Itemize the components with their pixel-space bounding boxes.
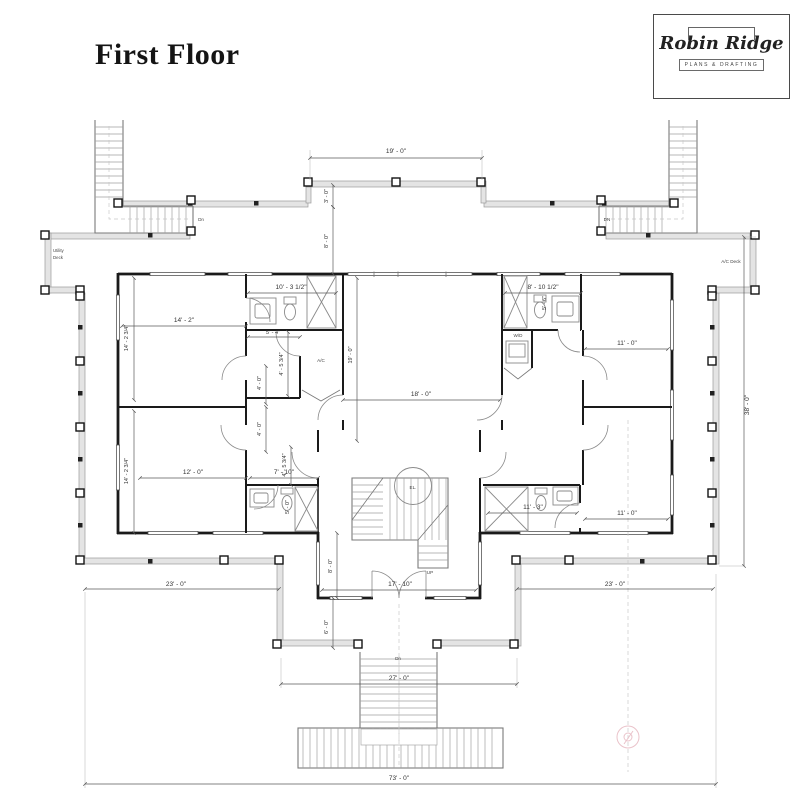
label-ac-closet: A/C <box>317 358 325 363</box>
dim-steps-width: 27' - 0" <box>389 675 410 682</box>
dim-bath-tr-width: 8' - 10 1/2" <box>527 284 559 291</box>
label-stair-down-right: DN <box>604 217 611 222</box>
dim-porch-left: 23' - 0" <box>166 581 187 588</box>
dim-great-width: 18' - 0" <box>411 391 432 398</box>
label-utility-deck-2: Deck <box>53 255 64 260</box>
dim-entry-depth: 8' - 0" <box>328 559 334 573</box>
label-utility-deck-1: Utility <box>53 248 65 253</box>
porch-posts <box>41 178 759 648</box>
dim-entry-porch-depth: 6' - 0" <box>324 620 330 634</box>
dim-bed-tl-depth: 14' - 2 3/4" <box>124 325 130 351</box>
front-steps <box>298 652 503 768</box>
exterior-stair-right <box>599 120 697 233</box>
label-stair-up: UP <box>427 570 433 575</box>
dim-hall-bl-depth: 4' - 5 3/4" <box>282 453 288 476</box>
label-stair-down-left: Dn <box>198 217 204 222</box>
dim-north-porch-depth: 8' - 0" <box>324 234 330 248</box>
dim-deck-width: 19' - 0" <box>386 148 407 155</box>
dim-porch-right: 23' - 0" <box>605 581 626 588</box>
dim-hall-lower: 4' - 0" <box>257 422 263 436</box>
dim-bath-br-width: 11' - 3" <box>523 504 543 511</box>
interior-walls <box>118 274 672 533</box>
dim-entry-width: 17' - 10" <box>388 581 412 588</box>
dim-hall-upper: 4' - 0" <box>257 376 263 390</box>
dim-closet-tl-depth: 4' - 5 3/4" <box>279 352 285 375</box>
dim-bed-tr-width: 11' - 0" <box>617 340 637 347</box>
dim-bed-bl-width: 12' - 0" <box>183 469 204 476</box>
porch-deck-bands <box>45 181 756 646</box>
dim-bath-tl-width: 10' - 3 1/2" <box>275 284 307 291</box>
interior-stair <box>352 478 448 568</box>
dim-overall-width: 73' - 0" <box>389 775 410 782</box>
plan-labels: Utility Deck A/C Deck A/C W/D EL. UP Dn … <box>53 217 741 661</box>
dim-great-depth: 19' - 0" <box>348 346 354 363</box>
dim-closet-tl-width: 5' - 4" <box>266 330 280 336</box>
windows <box>116 272 673 600</box>
bath-fixtures <box>250 276 579 531</box>
label-elevator: EL. <box>410 485 417 490</box>
floor-plan-sheet: First Floor Robin Ridge PLANS & DRAFTING <box>0 0 800 800</box>
dim-overall-depth: 38' - 0" <box>744 394 751 415</box>
dim-bath-tr-depth: 5' - 6" <box>542 296 548 310</box>
exterior-stair-left <box>95 120 193 233</box>
dim-deck-rail-depth: 3' - 0" <box>324 189 330 203</box>
exterior-walls <box>117 273 673 599</box>
reference-lines <box>399 420 628 772</box>
label-stair-down-front: Dn <box>395 656 401 661</box>
dim-bed-bl-depth: 14' - 2 3/4" <box>124 458 130 484</box>
label-ac-deck: A/C Deck <box>721 259 741 264</box>
dim-bath-bl-depth: 5' - 0" <box>285 500 291 514</box>
dim-bed-tl-width: 14' - 2" <box>174 317 195 324</box>
door-arcs <box>221 298 608 598</box>
dim-bed-br-width: 11' - 0" <box>617 510 637 517</box>
floor-plan-drawing: 19' - 0" 3' - 0" 8' - 0" 10' - 3 1/2" 8'… <box>0 0 800 800</box>
label-wd-closet: W/D <box>514 333 524 338</box>
